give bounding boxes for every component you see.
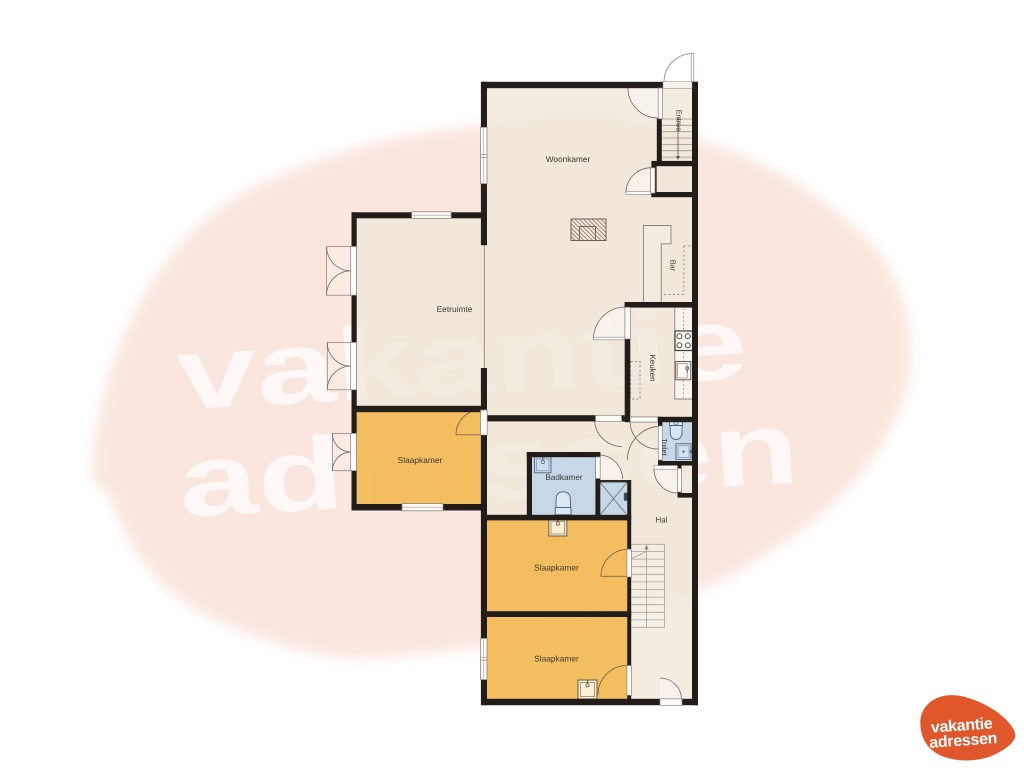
- svg-text:Toilet: Toilet: [660, 438, 669, 455]
- svg-text:Entree: Entree: [675, 110, 684, 132]
- svg-text:Woonkamer: Woonkamer: [546, 154, 591, 164]
- svg-text:Slaapkamer: Slaapkamer: [398, 455, 443, 465]
- svg-text:Badkamer: Badkamer: [545, 473, 583, 482]
- svg-text:Keuken: Keuken: [648, 354, 657, 381]
- svg-text:Bar: Bar: [669, 260, 678, 272]
- svg-text:Hal: Hal: [655, 516, 667, 525]
- svg-text:Slaapkamer: Slaapkamer: [534, 563, 579, 573]
- svg-text:Slaapkamer: Slaapkamer: [534, 654, 579, 664]
- svg-text:Eetruimte: Eetruimte: [437, 304, 473, 314]
